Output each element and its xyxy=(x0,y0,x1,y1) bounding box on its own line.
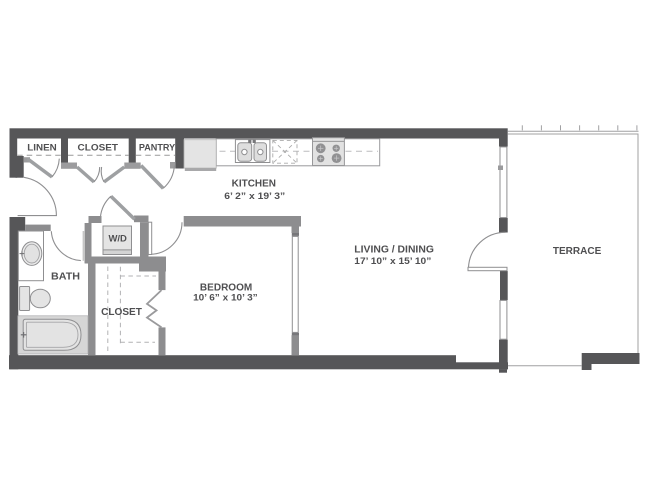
svg-text:BATH: BATH xyxy=(51,272,80,283)
svg-text:KITCHEN: KITCHEN xyxy=(232,178,276,189)
svg-text:W/D: W/D xyxy=(109,234,127,245)
svg-text:10’ 6” x 10’ 3”: 10’ 6” x 10’ 3” xyxy=(193,293,258,304)
svg-text:PANTRY: PANTRY xyxy=(139,142,176,153)
svg-text:LIVING / DINING: LIVING / DINING xyxy=(354,245,434,256)
svg-text:CLOSET: CLOSET xyxy=(78,142,119,153)
svg-text:LINEN: LINEN xyxy=(27,142,56,153)
svg-text:CLOSET: CLOSET xyxy=(101,307,142,318)
svg-text:17’ 10” x 15’ 10”: 17’ 10” x 15’ 10” xyxy=(354,256,431,267)
svg-text:TERRACE: TERRACE xyxy=(553,246,602,257)
svg-text:6’ 2” x 19’ 3”: 6’ 2” x 19’ 3” xyxy=(224,191,285,202)
